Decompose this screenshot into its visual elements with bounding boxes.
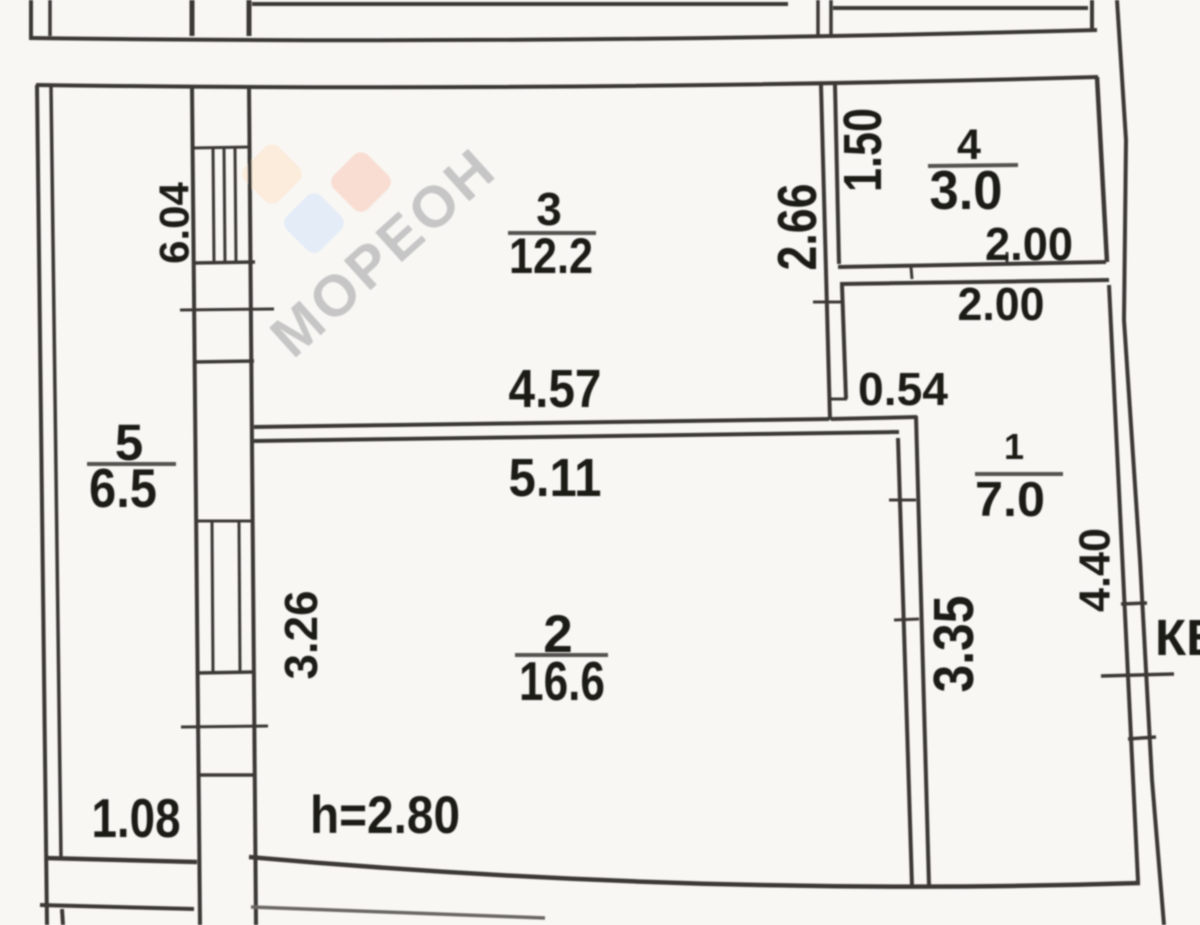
- svg-text:2.00: 2.00: [958, 278, 1045, 330]
- svg-text:КВ: КВ: [1155, 609, 1200, 666]
- svg-text:5.11: 5.11: [509, 448, 602, 508]
- svg-text:4.40: 4.40: [1071, 528, 1120, 612]
- svg-text:2.66: 2.66: [766, 184, 828, 271]
- svg-text:6.04: 6.04: [151, 181, 198, 263]
- svg-text:0.54: 0.54: [858, 363, 948, 415]
- svg-text:6.5: 6.5: [89, 457, 157, 519]
- svg-text:12.2: 12.2: [509, 228, 593, 284]
- svg-text:1.50: 1.50: [833, 108, 893, 192]
- svg-text:3.0: 3.0: [930, 159, 1003, 221]
- svg-text:7.0: 7.0: [975, 473, 1045, 527]
- svg-text:3.35: 3.35: [922, 596, 986, 693]
- svg-text:3.26: 3.26: [275, 591, 327, 680]
- svg-text:2.00: 2.00: [985, 218, 1073, 270]
- svg-text:1.08: 1.08: [92, 787, 181, 849]
- svg-text:h=2.80: h=2.80: [310, 786, 460, 845]
- svg-text:16.6: 16.6: [519, 650, 605, 712]
- svg-text:4.57: 4.57: [509, 359, 602, 419]
- svg-text:1: 1: [1004, 426, 1024, 467]
